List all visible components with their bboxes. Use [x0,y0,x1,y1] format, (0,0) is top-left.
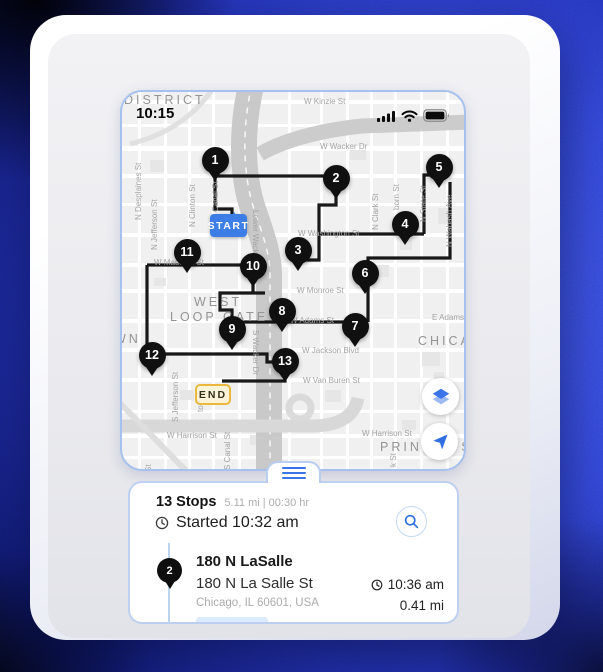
street-label: S Wacker Dr [251,330,260,375]
area-label: WN [120,332,141,346]
street-label: N Clark St [371,194,380,230]
status-bar-time: 10:15 [136,105,174,122]
map-labels-layer: W Kinzie StW Wacker DrW Washington StW M… [122,92,466,471]
status-bar-icons [377,109,450,122]
end-badge[interactable]: END [195,384,231,405]
signal-icon [377,110,396,122]
street-label: W Adams St [290,316,334,325]
start-badge-label: START [208,220,250,232]
street-label: W Wacker Dr [320,142,367,151]
map-stop-pin-11[interactable]: 11 [174,239,201,266]
drag-handle-bar [282,472,306,475]
street-label: W Jackson Blvd [302,346,359,355]
street-label: born St [392,184,401,210]
map-stop-pin-5[interactable]: 5 [426,154,453,181]
stop-city: Chicago, IL 60601, USA [196,597,319,609]
search-icon [403,513,420,530]
street-label: W Van Buren St [303,376,360,385]
street-label: W Kinzie St [304,97,345,106]
stop-number: 2 [166,565,172,577]
clock-icon [371,579,383,591]
map-stop-pin-10[interactable]: 10 [240,253,267,280]
stop-name[interactable]: 180 N LaSalle [196,553,293,570]
drag-handle-bar [282,467,306,470]
street-label: N Desplaines St [134,163,143,220]
trip-summary-row: 13 Stops 5.11 mi | 00:30 hr [156,494,309,510]
drag-handle-bar [282,477,306,480]
map-stop-pin-13[interactable]: 13 [272,348,299,375]
wifi-icon [401,110,418,122]
map-stop-pin-8[interactable]: 8 [269,298,296,325]
map-stop-pin-3[interactable]: 3 [285,237,312,264]
map-stop-pin-7[interactable]: 7 [342,313,369,340]
street-label: N Jefferson St [150,199,159,250]
started-row: Started 10:32 am [155,514,299,532]
street-label: W Washington St [298,229,360,238]
map-stop-pin-9[interactable]: 9 [219,316,246,343]
street-label: W Harrison St [362,429,412,438]
map-stop-pin-4[interactable]: 4 [392,211,419,238]
search-button[interactable] [396,506,427,537]
start-badge[interactable]: START [210,214,247,237]
map-stop-pin-12[interactable]: 12 [139,342,166,369]
sheet-drag-handle[interactable] [266,461,321,483]
map-stop-pin-6[interactable]: 6 [352,260,379,287]
stop-eta: 10:36 am [388,577,444,592]
stop-list-pin: 2 [157,558,182,583]
street-label: N Wabash Ave [445,195,454,247]
stops-count: 13 Stops [156,494,216,510]
bottom-sheet[interactable]: 13 Stops 5.11 mi | 00:30 hr Started 10:3… [128,481,459,624]
layers-icon [430,386,452,408]
stop-action-chip[interactable] [196,617,268,624]
street-label: N State St [419,186,428,222]
page-background: W Kinzie StW Wacker DrW Washington StW M… [0,0,603,672]
area-label: LOOP GATE [170,310,268,324]
street-label: St [144,464,153,471]
map-stop-pin-2[interactable]: 2 [323,165,350,192]
area-label: CHICAGO [418,334,466,348]
street-label: k St [389,453,398,467]
street-label: S Canal St [223,432,232,470]
map-view[interactable]: W Kinzie StW Wacker DrW Washington StW M… [120,90,466,471]
started-time: Started 10:32 am [176,514,299,532]
layers-button[interactable] [422,378,459,415]
street-label: N Clinton St [188,184,197,227]
stop-eta-row: 10:36 am [371,577,444,592]
street-label: W Harrison St [167,431,217,440]
recenter-button[interactable] [421,423,458,460]
clock-icon [155,516,169,530]
street-label: S Jefferson St [171,372,180,422]
street-label: E Adams [432,313,464,322]
map-stop-pin-1[interactable]: 1 [202,147,229,174]
stop-distance: 0.41 mi [400,598,444,613]
street-label: W Monroe St [297,286,344,295]
area-label: WEST [194,295,242,309]
stop-address: 180 N La Salle St [196,575,313,592]
battery-icon [423,109,450,122]
trip-distance-duration: 5.11 mi | 00:30 hr [224,497,309,509]
navigation-icon [430,432,450,452]
end-badge-label: END [199,389,227,401]
